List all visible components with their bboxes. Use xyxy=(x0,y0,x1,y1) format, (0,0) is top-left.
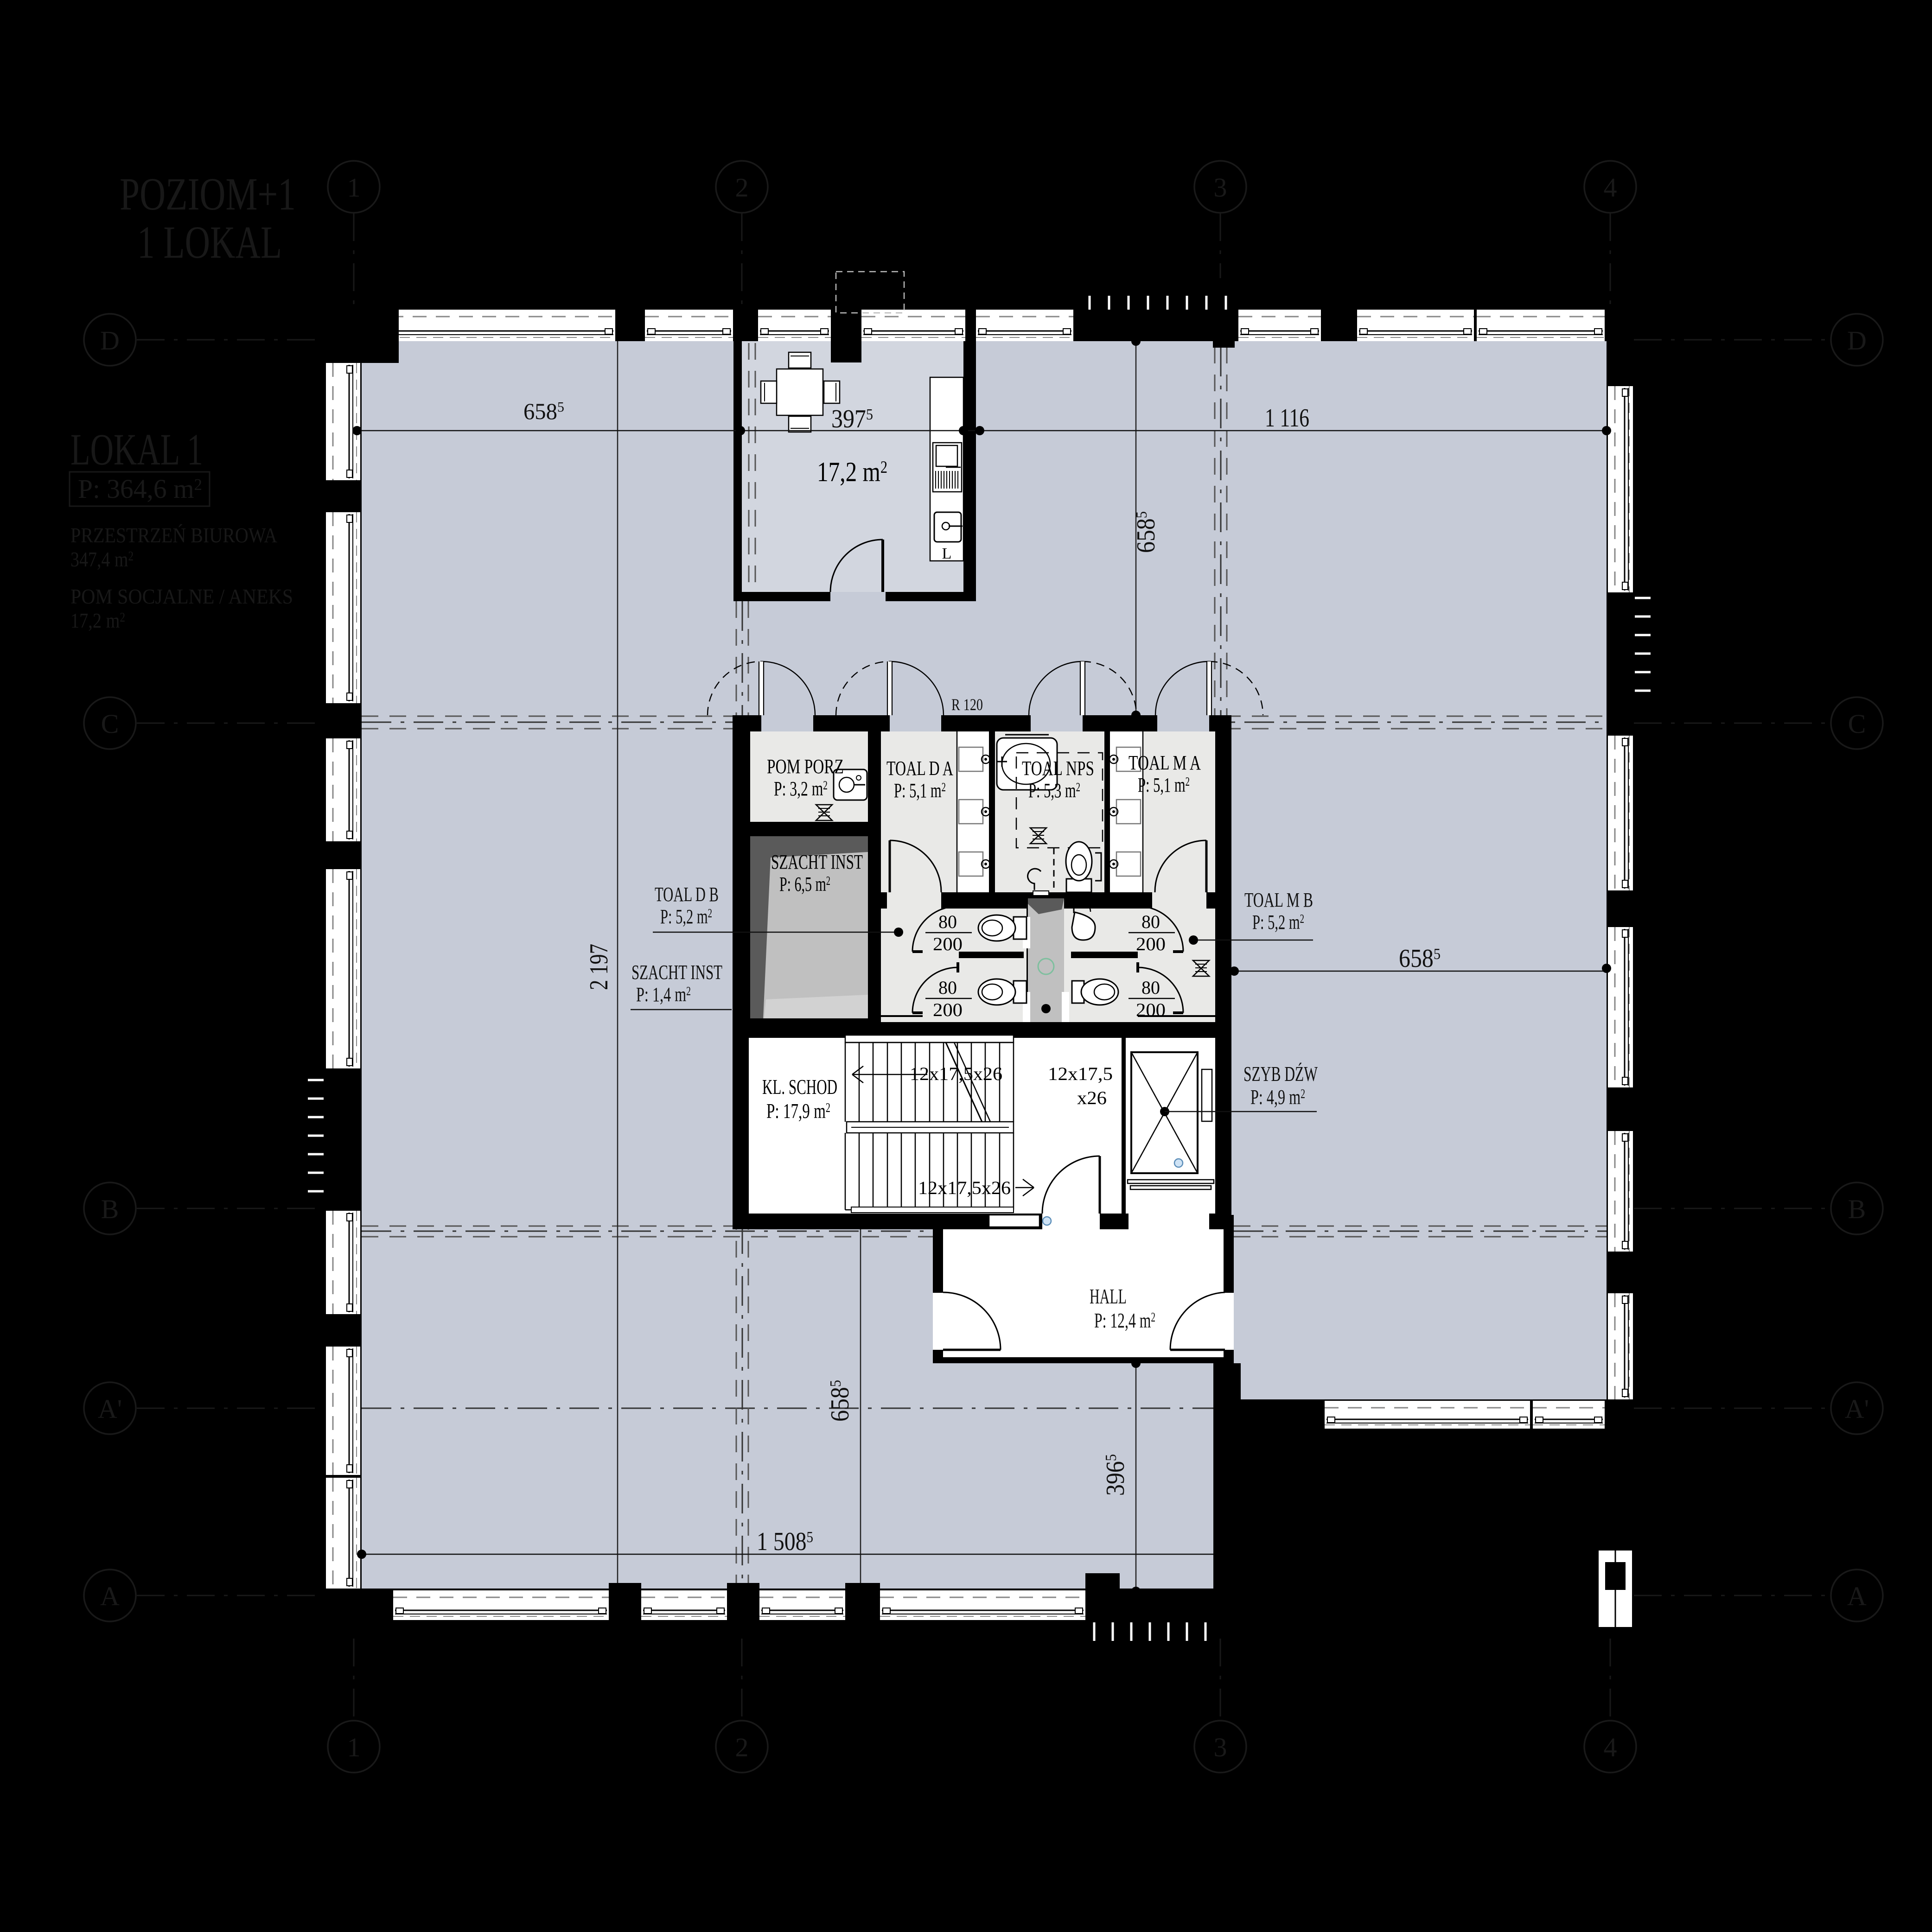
svg-text:C: C xyxy=(101,709,119,739)
svg-text:80: 80 xyxy=(1141,977,1160,998)
svg-text:SZACHT INST: SZACHT INST xyxy=(771,851,863,873)
svg-text:4: 4 xyxy=(1604,1732,1617,1762)
svg-text:P: 1,4 m2: P: 1,4 m2 xyxy=(636,983,691,1006)
svg-text:17,2 m2: 17,2 m2 xyxy=(70,609,125,632)
svg-text:200: 200 xyxy=(933,934,963,954)
svg-text:12x17,5x26: 12x17,5x26 xyxy=(910,1063,1002,1084)
svg-text:4: 4 xyxy=(1604,172,1617,203)
svg-text:D: D xyxy=(1847,325,1867,356)
svg-text:B: B xyxy=(101,1194,119,1224)
svg-text:POZIOM+1: POZIOM+1 xyxy=(120,168,296,220)
svg-text:1: 1 xyxy=(347,172,361,203)
svg-text:C: C xyxy=(1848,709,1866,739)
svg-text:200: 200 xyxy=(1136,934,1166,954)
svg-text:A': A' xyxy=(98,1394,122,1424)
svg-text:347,4 m2: 347,4 m2 xyxy=(70,547,134,571)
svg-text:A': A' xyxy=(1845,1394,1869,1424)
svg-text:TOAL M A: TOAL M A xyxy=(1129,751,1201,774)
svg-text:P: 3,2 m2: P: 3,2 m2 xyxy=(774,777,828,800)
svg-text:1: 1 xyxy=(347,1732,361,1762)
svg-text:P: 17,9 m2: P: 17,9 m2 xyxy=(766,1099,830,1123)
svg-text:2: 2 xyxy=(735,1732,749,1762)
svg-text:P: 5,3 m2: P: 5,3 m2 xyxy=(1028,779,1080,802)
svg-text:A: A xyxy=(1847,1581,1867,1611)
svg-text:P: 4,9 m2: P: 4,9 m2 xyxy=(1250,1085,1305,1109)
svg-text:P: 5,2 m2: P: 5,2 m2 xyxy=(660,905,712,928)
svg-text:12x17,5: 12x17,5 xyxy=(1048,1063,1113,1084)
svg-text:P: 5,1 m2: P: 5,1 m2 xyxy=(894,779,946,802)
svg-text:1 LOKAL: 1 LOKAL xyxy=(137,216,282,268)
svg-text:D: D xyxy=(100,325,120,356)
svg-text:P: 364,6 m2: P: 364,6 m2 xyxy=(78,474,202,504)
svg-text:POM PORZ: POM PORZ xyxy=(767,755,844,778)
svg-text:x26: x26 xyxy=(1077,1087,1107,1108)
svg-text:R 120: R 120 xyxy=(951,695,983,714)
svg-text:L: L xyxy=(942,545,952,562)
svg-text:TOAL D B: TOAL D B xyxy=(655,883,719,906)
svg-text:200: 200 xyxy=(933,999,963,1020)
svg-text:SZYB DŹW: SZYB DŹW xyxy=(1243,1062,1318,1086)
svg-text:A: A xyxy=(100,1581,120,1611)
svg-text:LOKAL 1: LOKAL 1 xyxy=(70,425,203,474)
svg-text:P: 6,5 m2: P: 6,5 m2 xyxy=(779,873,830,896)
svg-text:TOAL D A: TOAL D A xyxy=(886,757,953,780)
svg-text:KL. SCHOD: KL. SCHOD xyxy=(762,1075,837,1099)
svg-text:80: 80 xyxy=(938,911,957,932)
svg-text:80: 80 xyxy=(1141,911,1160,932)
svg-text:TOAL M B: TOAL M B xyxy=(1244,889,1313,911)
svg-text:HALL: HALL xyxy=(1090,1284,1127,1308)
svg-text:PRZESTRZEŃ BIUROWA: PRZESTRZEŃ BIUROWA xyxy=(70,523,277,547)
svg-text:3: 3 xyxy=(1214,1732,1227,1762)
svg-text:17,2 m2: 17,2 m2 xyxy=(817,457,887,487)
svg-text:POM SOCJALNE / ANEKS: POM SOCJALNE / ANEKS xyxy=(70,585,293,608)
svg-text:SZACHT INST: SZACHT INST xyxy=(631,961,722,984)
svg-text:80: 80 xyxy=(938,977,957,998)
svg-text:1 5085: 1 5085 xyxy=(757,1527,813,1556)
svg-text:B: B xyxy=(1848,1194,1866,1224)
svg-text:2: 2 xyxy=(735,172,749,203)
svg-text:TOAL NPS: TOAL NPS xyxy=(1022,757,1094,780)
svg-text:1 116: 1 116 xyxy=(1265,404,1309,432)
svg-text:200: 200 xyxy=(1136,999,1166,1020)
svg-text:12x17,5x26: 12x17,5x26 xyxy=(918,1177,1011,1198)
svg-text:P: 5,1 m2: P: 5,1 m2 xyxy=(1138,774,1190,796)
svg-text:2 197: 2 197 xyxy=(585,944,613,990)
svg-text:3: 3 xyxy=(1214,172,1227,203)
svg-text:P: 5,2 m2: P: 5,2 m2 xyxy=(1252,911,1304,934)
svg-text:P: 12,4 m2: P: 12,4 m2 xyxy=(1094,1309,1155,1332)
